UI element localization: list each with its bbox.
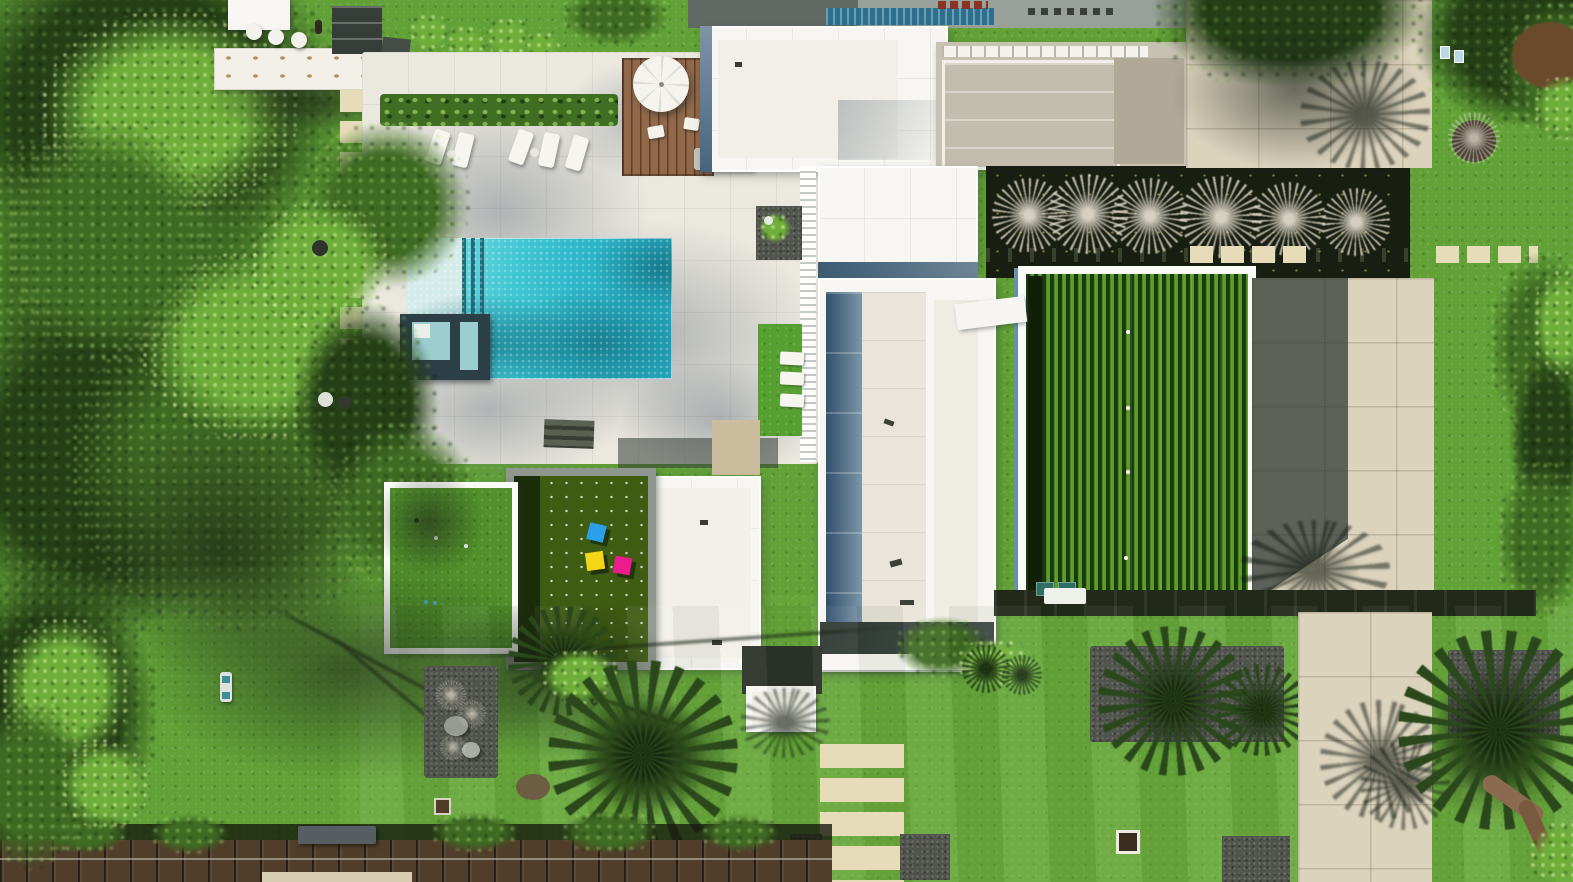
roof-vent [735,62,742,67]
skylight-frame [942,60,1120,170]
bare-tree [1252,182,1326,256]
utility-box [434,798,451,815]
glass-edge [700,26,712,172]
glass-edge [826,292,862,646]
fence-shrub [700,814,780,852]
ornamental-grass [458,700,486,728]
hedge [1028,276,1042,596]
courtyard-lounger [780,371,805,385]
golf-ball [1126,406,1130,410]
framed-turf-lawn [1018,266,1256,606]
bar-stool [291,32,307,48]
golf-ball [1126,470,1130,474]
umbrella-pole [659,82,664,87]
planter-plant [758,212,792,244]
garden-pillar-cap [222,692,230,699]
paver-path [820,744,904,882]
palm-tree [1216,664,1308,756]
golf-ball [1126,330,1130,334]
deck-chair [683,117,700,131]
bush [60,740,150,830]
roof-panel [934,300,978,636]
stepping-stone [516,774,550,800]
fence-shrub [430,812,520,852]
ornamental-grass [440,734,466,760]
shrub-ball [408,12,450,52]
cube-seat-magenta [613,556,633,576]
spa-ledge [450,322,460,370]
bottle [315,20,322,34]
gate [1044,588,1086,604]
slat-fence [800,166,816,462]
path-patch [712,420,760,475]
roof-vent-row [1028,8,1118,15]
path-patch [262,872,412,882]
bare-tree [1448,112,1500,164]
decor-ball [764,216,773,225]
solar-panel-row [826,8,994,25]
main-house-roof-mid [818,166,978,268]
fence-shrub [150,814,230,854]
golf-ball [1124,556,1128,560]
bar-stool [246,24,262,40]
aerial-estate-photo [0,0,1573,882]
sphere-planter [318,392,333,407]
sphere-planter [338,396,351,409]
pool-steps [544,419,595,449]
utility-box [1116,830,1140,854]
utility-marker [1440,46,1450,59]
tree-canopy [10,120,210,360]
roof-walkway [862,292,926,652]
courtyard-lounger [780,393,805,407]
turf-seams [1130,274,1248,598]
bare-tree [1112,178,1188,254]
garden-pillar-cap [222,676,230,683]
courtyard-lounger [780,351,805,365]
cube-seat-yellow [585,551,605,571]
boardwalk-rail [0,858,832,860]
roof-vent [700,520,708,525]
utility-marker [1454,50,1464,63]
sphere-planter [312,240,328,256]
boardwalk [0,840,832,882]
tree-shadow [1300,60,1430,170]
skylight-band [942,46,1148,57]
gravel-square [900,834,950,880]
roof-facet-shadow [838,100,948,160]
paver-path [1190,246,1312,263]
bare-tree [1322,188,1390,256]
bench [298,826,376,844]
glass-edge [818,262,978,278]
gravel-square [1222,836,1290,882]
fence-shrub [560,810,660,854]
roof-vent [900,600,914,605]
side-table [530,148,539,157]
roof-vent-row [938,1,988,9]
bar-stool [268,29,284,45]
planting-strip [380,94,618,126]
grill-appliance [332,6,382,54]
